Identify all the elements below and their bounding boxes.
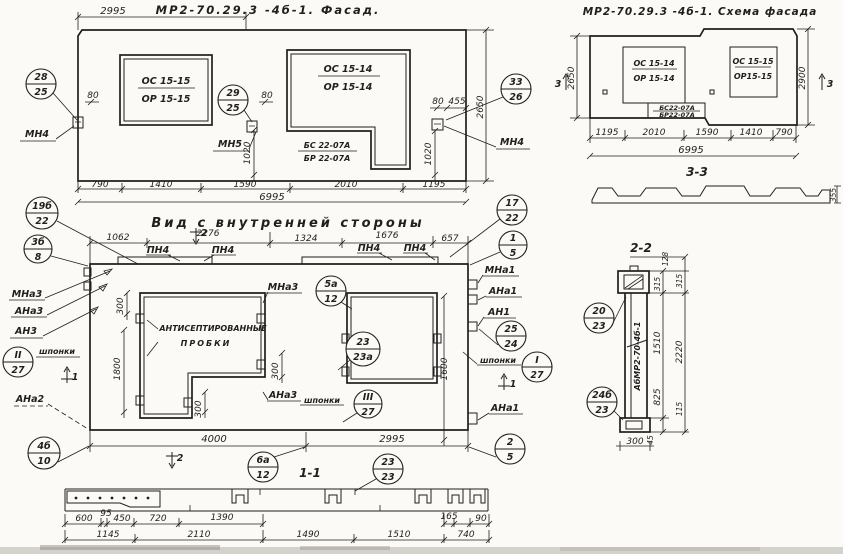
- plate-label: ПН4: [147, 245, 170, 256]
- callout-bottom: 23а: [353, 352, 373, 363]
- leader-line: [470, 252, 500, 265]
- dim-label: 1590: [234, 180, 257, 190]
- dim-label: 2220: [675, 340, 685, 363]
- callout-top: 25: [504, 324, 518, 335]
- callout-top: 28: [34, 72, 48, 83]
- plate-label: ПН4: [212, 245, 235, 256]
- profile-detail: [190, 489, 380, 511]
- dim-label: 4000: [201, 434, 226, 445]
- callout-ii-27: II 27: [3, 347, 33, 377]
- section33-profile: [592, 186, 830, 203]
- window-channel: [325, 489, 341, 503]
- callout-bottom: 5: [510, 248, 517, 259]
- note-line: АНТИСЕПТИРОВАННЫЕ: [158, 324, 267, 333]
- insert-square: [603, 90, 607, 94]
- callout-bottom: 27: [11, 365, 25, 376]
- leader-line: [53, 93, 77, 120]
- section-mark-1-left: 1: [61, 367, 78, 383]
- dim-label: 825: [653, 388, 663, 405]
- dim-label: 1600: [440, 357, 450, 380]
- callout-bottom: 23: [381, 472, 395, 483]
- section-mark-label: 3: [555, 79, 562, 90]
- dim-label: 95: [100, 509, 112, 519]
- dim-label: 1062: [107, 233, 130, 243]
- leader-line: [478, 275, 519, 283]
- leader-line: [263, 292, 302, 303]
- callout-bottom: 23: [595, 405, 609, 416]
- leader-line: [147, 320, 158, 356]
- callout-bottom: 5: [507, 452, 514, 463]
- section-mark-2-bottom: 2: [166, 452, 184, 468]
- callout-bottom: 22: [505, 213, 519, 224]
- window-mark: ОС 15-14: [633, 59, 674, 68]
- window-mark: ОС 15-15: [142, 76, 191, 87]
- callout-bottom: 25: [226, 103, 240, 114]
- window-channel: [415, 489, 431, 503]
- callout-24b-23: 24б 23: [587, 387, 623, 420]
- dim-label: 1676: [376, 231, 399, 241]
- window-mark: ОР 15-15: [142, 94, 191, 105]
- callout-28-25: 28 25: [26, 69, 77, 120]
- dim-label: 1410: [740, 128, 763, 138]
- dim-label: 300: [271, 362, 281, 379]
- callout-top: 20: [592, 306, 606, 317]
- callout-top: 24б: [592, 390, 612, 401]
- section-mark-label: 2: [201, 228, 208, 239]
- dim-label: 2010: [335, 180, 358, 190]
- dim-label: 1390: [211, 513, 234, 523]
- dim-label: 2995: [379, 434, 404, 445]
- insert-square: [710, 90, 714, 94]
- dim-label: 1410: [150, 180, 173, 190]
- dim-label: 1324: [295, 234, 318, 244]
- callout-i-27: I 27: [522, 352, 552, 382]
- window-mark: ОР 15-14: [633, 74, 674, 83]
- inner-dim-bottom: [87, 430, 471, 452]
- section-mark-label: 1: [72, 372, 79, 383]
- schema-dim-bottom: [587, 118, 799, 143]
- dim-label: 128: [661, 252, 670, 267]
- sill-mark: БС 22-07А: [304, 141, 351, 150]
- leader-line: [469, 447, 496, 457]
- callout-top: 3б: [31, 237, 45, 248]
- callout-25-24: 25 24: [479, 321, 526, 351]
- dim-label: 315: [675, 274, 684, 289]
- callout-2-5: 2 5: [469, 434, 525, 464]
- facade-anchor-mid: [247, 121, 257, 132]
- facade-panel-outline: [78, 30, 466, 181]
- leader-line: [51, 256, 88, 266]
- section-2-2: 2-2 АбМР2-70-4б-1 128 315 315 1510 2220 …: [584, 241, 689, 451]
- callout-top: 29: [226, 88, 240, 99]
- callout-top: 1: [510, 233, 517, 244]
- facade-title: МР2-70.29.3 -4б-1. Фасад.: [156, 3, 381, 17]
- callout-bottom: 23: [592, 321, 606, 332]
- leader-line: [614, 411, 623, 420]
- dim-label: 720: [149, 514, 166, 524]
- insert-label: АНа3: [268, 390, 298, 401]
- dim-label: 1195: [423, 180, 446, 190]
- inner-window1: АНТИСЕПТИРОВАННЫЕ ПРОБКИ: [136, 293, 267, 418]
- leader-line: [479, 329, 498, 345]
- section-label: 2-2: [630, 241, 652, 255]
- leader-line: [244, 110, 252, 122]
- dim-label: 45: [646, 435, 655, 445]
- insert-label: МНа1: [485, 265, 515, 276]
- keys-label: шпонки: [39, 347, 75, 356]
- callout-20-23: 20 23: [584, 297, 626, 333]
- insert-label: АН3: [14, 326, 37, 337]
- dim-label: 600: [75, 514, 92, 524]
- insert-label: АН1: [487, 307, 510, 318]
- dim-label: 1020: [243, 141, 253, 164]
- anchor-label: МН5: [218, 139, 242, 150]
- dim-label: 2110: [188, 530, 211, 540]
- anchor-label: МН4: [500, 137, 524, 148]
- window-channel: [448, 489, 463, 503]
- schema-title: МР2-70.29.3 -4б-1. Схема фасада: [583, 6, 818, 18]
- section-1-1: 1-1 600 95 450 720 1390 165 90 1145 2110…: [62, 466, 492, 543]
- leader-line: [274, 447, 305, 457]
- callout-iii-27: III 27: [343, 390, 382, 422]
- callout-top: 23: [381, 457, 395, 468]
- insert-label: МНа3: [12, 289, 43, 300]
- schema-view: МР2-70.29.3 -4б-1. Схема фасада ОС 15-14…: [555, 6, 841, 203]
- insert-label: АНа3: [14, 306, 44, 317]
- callout-bottom: 22: [35, 216, 49, 227]
- dim-label: 657: [441, 234, 458, 244]
- callout-29-25: 29 25: [218, 85, 252, 122]
- dim-label: 1800: [113, 357, 123, 380]
- plate-pn4-b: [302, 257, 438, 264]
- dim-label: 1590: [696, 128, 719, 138]
- callout-6a-12: 6а 12: [248, 447, 305, 482]
- dim-label: 740: [457, 530, 474, 540]
- dim-label: 1490: [297, 530, 320, 540]
- sill-mark: БР22-07А: [659, 111, 695, 119]
- insert-label: АНа1: [490, 403, 519, 414]
- drawing-sheet: МР2-70.29.3 -4б-1. Фасад. ОС 15-15 ОР 15…: [0, 0, 843, 554]
- callout-top: 6а: [256, 455, 269, 466]
- dim-label: 1145: [97, 530, 120, 540]
- edge-tab: [468, 322, 477, 331]
- window-mark: ОС 15-14: [324, 64, 373, 75]
- callout-4b-10: 4б 10: [28, 437, 89, 469]
- dim-label: 2900: [798, 66, 808, 89]
- section-mark-label: 3: [827, 79, 834, 90]
- callout-top: III: [363, 392, 374, 403]
- callout-top: II: [14, 350, 22, 361]
- leader-line: [343, 413, 357, 422]
- dim-label: 1195: [596, 128, 619, 138]
- insert-label: АНа2: [15, 394, 45, 405]
- section-mark-3-right: 3: [819, 74, 834, 90]
- callout-top: 17: [505, 198, 519, 209]
- edge-tab: [468, 295, 477, 304]
- callout-top: 2: [507, 437, 514, 448]
- callout-top: 19б: [32, 201, 52, 212]
- dim-label: 2010: [643, 128, 666, 138]
- blueprint-svg: МР2-70.29.3 -4б-1. Фасад. ОС 15-15 ОР 15…: [0, 0, 843, 554]
- callout-bottom: 8: [35, 252, 42, 263]
- dim-label: 1510: [388, 530, 411, 540]
- callout-bottom: 12: [324, 294, 338, 305]
- panel-marking: АбМР2-70-4б-1: [632, 322, 642, 392]
- section-label: 1-1: [299, 466, 321, 480]
- callout-top: I: [535, 355, 539, 366]
- anchor-label: МН4: [25, 129, 49, 140]
- dim-label: 355: [829, 188, 838, 203]
- facade-sill-marks: БС 22-07А БР 22-07А: [298, 141, 357, 163]
- keys-label: шпонки: [304, 396, 340, 405]
- callout-top: 4б: [36, 441, 51, 452]
- dim-label: 315: [653, 277, 662, 292]
- window-channel: [232, 489, 248, 503]
- dim-label: 2995: [100, 6, 125, 17]
- dim-label: 300: [116, 297, 126, 314]
- dim-label: 6995: [259, 192, 284, 203]
- inner-title: Вид с внутренней стороны: [151, 216, 424, 231]
- section11-profile: [65, 489, 488, 511]
- callout-bottom: 25: [34, 87, 48, 98]
- window-channel: [470, 489, 485, 503]
- section-mark-1-right: 1: [498, 374, 516, 390]
- keys-label: шпонки: [480, 356, 516, 365]
- insert-label: МНа3: [268, 282, 299, 293]
- window-mark: ОР 15-14: [324, 82, 373, 93]
- callout-23-23: 23 23: [355, 454, 403, 491]
- callout-bottom: 26: [509, 92, 523, 103]
- leader-line: [58, 446, 89, 462]
- callout-bottom: 10: [37, 456, 51, 467]
- dim-label: 300: [626, 437, 643, 447]
- callout-bottom: 27: [361, 407, 375, 418]
- section-label: 3-3: [686, 165, 708, 179]
- dim-label: 790: [775, 128, 792, 138]
- scan-artifacts: [0, 545, 843, 554]
- plate-label: ПН4: [358, 243, 381, 254]
- callout-bottom: 24: [504, 339, 518, 350]
- section-mark-label: 2: [177, 453, 184, 464]
- plate-label: ПН4: [404, 243, 427, 254]
- dim-label: 80: [432, 97, 444, 107]
- dim-label: 165: [440, 512, 457, 522]
- facade-view: МР2-70.29.3 -4б-1. Фасад. ОС 15-15 ОР 15…: [20, 3, 531, 205]
- callout-23-23a: 23 23а: [338, 332, 380, 370]
- callout-bottom: 27: [530, 370, 544, 381]
- leader-line: [338, 360, 350, 370]
- note-line: ПРОБКИ: [181, 339, 232, 348]
- dim-label: 1510: [653, 331, 663, 354]
- callout-top: 33: [509, 77, 523, 88]
- window-mark: ОР15-15: [734, 72, 773, 81]
- edge-tab: [468, 280, 477, 289]
- leader-line: [14, 404, 88, 429]
- dim-label: 790: [91, 180, 108, 190]
- leader-line: [478, 413, 523, 420]
- dim-label: 1020: [424, 142, 434, 165]
- section11-dims-lower: [62, 530, 492, 543]
- dim-label: 455: [448, 97, 465, 107]
- dim-label: 115: [675, 402, 684, 417]
- callout-1-5: 1 5: [470, 231, 527, 265]
- dim-label: 450: [113, 514, 130, 524]
- dim-label: 90: [475, 514, 487, 524]
- dim-label: 6995: [678, 145, 703, 156]
- callout-3b-8: 3б 8: [24, 235, 88, 266]
- window-mark: ОС 15-15: [732, 57, 773, 66]
- insert-label: АНа1: [488, 286, 517, 297]
- edge-tab: [468, 413, 477, 424]
- inner-view: Вид с внутренней стороны 1062 2276 1324 …: [3, 195, 552, 491]
- callout-top: 23: [356, 337, 370, 348]
- section-mark-label: 1: [510, 379, 517, 390]
- leader-line: [478, 296, 522, 300]
- callout-top: 5а: [324, 279, 337, 290]
- sill-mark: БР 22-07А: [304, 154, 351, 163]
- facade-window1: ОС 15-15 ОР 15-15: [120, 55, 212, 125]
- callout-bottom: 12: [256, 470, 270, 481]
